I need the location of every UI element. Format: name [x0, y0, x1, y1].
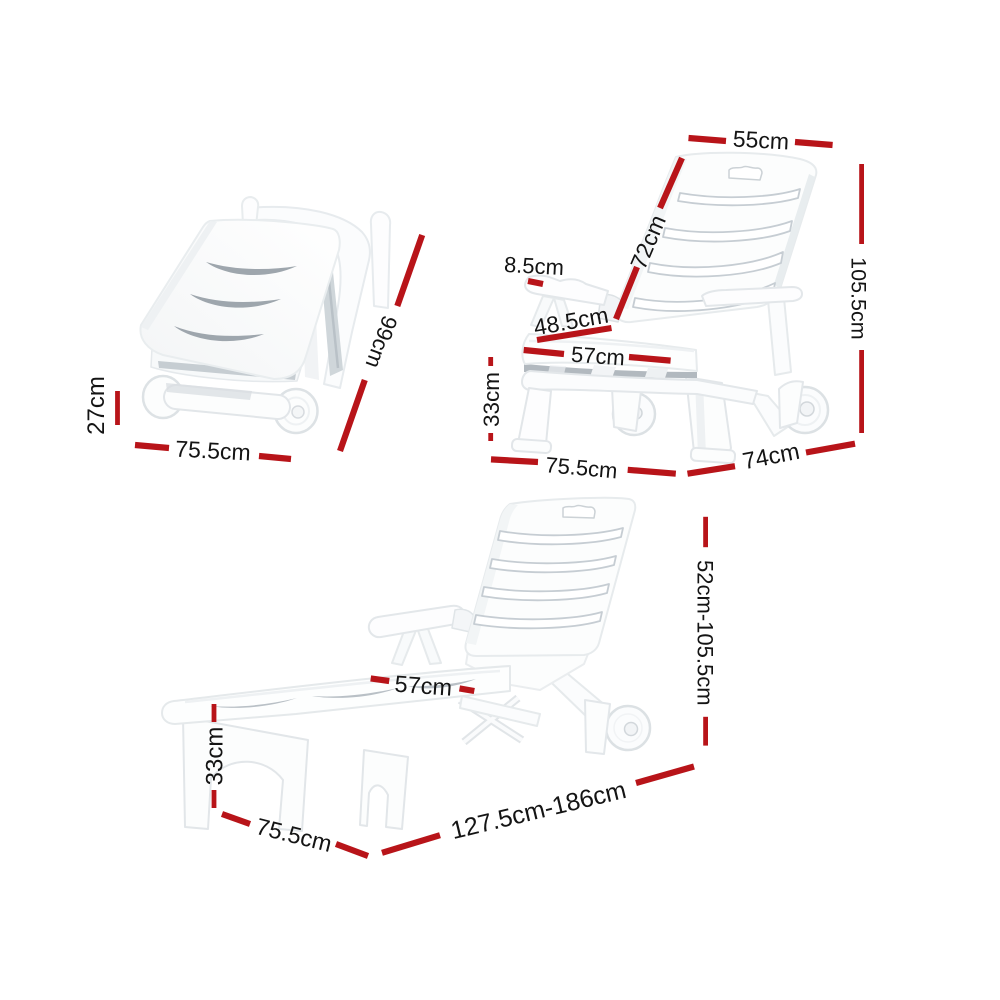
- svg-text:33cm: 33cm: [479, 372, 504, 427]
- svg-text:8.5cm: 8.5cm: [503, 252, 564, 280]
- svg-text:55cm: 55cm: [732, 126, 790, 155]
- svg-text:127.5cm-186cm: 127.5cm-186cm: [448, 776, 629, 845]
- svg-text:75.5cm: 75.5cm: [544, 452, 618, 483]
- svg-text:33cm: 33cm: [202, 727, 229, 786]
- svg-text:74cm: 74cm: [740, 438, 801, 474]
- svg-text:99cm: 99cm: [361, 312, 403, 371]
- svg-text:75.5cm: 75.5cm: [175, 436, 252, 466]
- svg-text:57cm: 57cm: [394, 671, 453, 701]
- svg-text:52cm-105.5cm: 52cm-105.5cm: [692, 560, 717, 706]
- svg-text:27cm: 27cm: [83, 376, 110, 435]
- svg-text:105.5cm: 105.5cm: [846, 257, 870, 339]
- svg-text:57cm: 57cm: [570, 342, 625, 371]
